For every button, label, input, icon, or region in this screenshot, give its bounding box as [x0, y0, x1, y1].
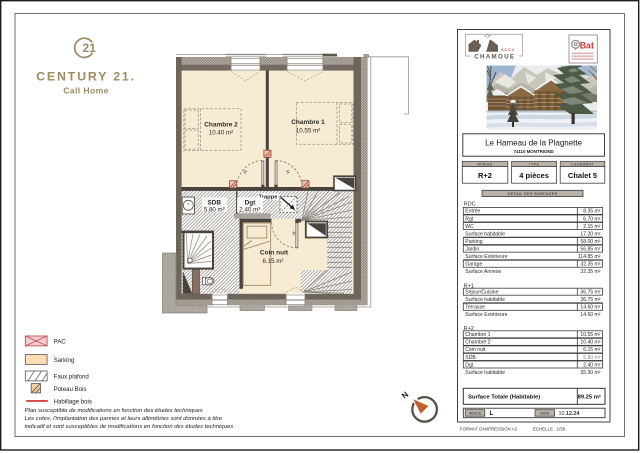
svg-text:Garage: Garage: [465, 262, 482, 268]
svg-text:RDC: RDC: [464, 202, 476, 208]
svg-text:Surface Totale (Habitable): Surface Totale (Habitable): [468, 394, 540, 400]
svg-text:89.25 m²: 89.25 m²: [578, 394, 601, 401]
svg-text:Terrasse: Terrasse: [465, 305, 485, 311]
svg-text:Coin nuit: Coin nuit: [465, 347, 486, 353]
svg-text:74110 MONTRIOND: 74110 MONTRIOND: [513, 149, 553, 154]
svg-text:10.40 m²: 10.40 m²: [580, 340, 600, 346]
svg-text:DETAIL DES SURFACES: DETAIL DES SURFACES: [507, 191, 557, 196]
svg-text:Bat: Bat: [580, 40, 594, 50]
svg-text:SDB: SDB: [465, 355, 476, 361]
svg-text:14.60 m²: 14.60 m²: [580, 312, 600, 318]
svg-text:2.15 m²: 2.15 m²: [583, 224, 601, 230]
svg-text:LOGEMENT: LOGEMENT: [571, 162, 594, 166]
svg-text:SCCV: SCCV: [501, 48, 515, 52]
svg-text:58.00 m²: 58.00 m²: [580, 239, 600, 245]
svg-text:Jardin: Jardin: [465, 246, 479, 252]
svg-text:Entrée: Entrée: [465, 209, 480, 215]
svg-text:Le Hameau de la Plagnette: Le Hameau de la Plagnette: [485, 139, 583, 148]
svg-text:6.15 m²: 6.15 m²: [583, 347, 601, 353]
svg-text:36.75 m²: 36.75 m²: [580, 297, 600, 303]
svg-text:Dgt: Dgt: [245, 199, 257, 206]
svg-text:PAC: PAC: [54, 338, 67, 345]
svg-text:Chambre 2: Chambre 2: [204, 122, 238, 129]
svg-text:DATE: DATE: [540, 412, 550, 416]
svg-text:CHAMOUE: CHAMOUE: [474, 54, 515, 61]
svg-text:Surface Extérieure: Surface Extérieure: [465, 312, 507, 318]
svg-text:Poteau Bois: Poteau Bois: [54, 386, 87, 393]
svg-text:56.85 m²: 56.85 m²: [580, 246, 600, 252]
svg-text:5.80 m²: 5.80 m²: [583, 355, 601, 361]
svg-text:10.12.24: 10.12.24: [559, 411, 580, 417]
svg-text:Séjour/Cuisine: Séjour/Cuisine: [465, 290, 498, 296]
svg-text:NIVEAU: NIVEAU: [477, 162, 492, 166]
svg-text:FORMAT D'IMPRESSION A3: FORMAT D'IMPRESSION A3: [460, 427, 518, 432]
svg-text:8.35 m²: 8.35 m²: [583, 209, 601, 215]
svg-text:Habillage bois: Habillage bois: [54, 398, 92, 405]
svg-text:21: 21: [83, 41, 97, 55]
svg-text:Parking: Parking: [465, 239, 482, 245]
svg-text:Call Home: Call Home: [63, 86, 109, 96]
svg-text:Coin nuit: Coin nuit: [260, 250, 289, 257]
svg-text:32.35 m²: 32.35 m²: [580, 262, 600, 268]
svg-text:Surface Extérieure: Surface Extérieure: [465, 254, 507, 260]
svg-text:Les cotes, l'implantation des: Les cotes, l'implantation des pannes et …: [25, 416, 223, 422]
svg-text:10.40 m²: 10.40 m²: [209, 130, 233, 137]
svg-text:Chambre 2: Chambre 2: [465, 340, 490, 346]
svg-text:Plan susceptible de modificati: Plan susceptible de modifications en fon…: [25, 408, 203, 414]
svg-text:35.30 m²: 35.30 m²: [580, 370, 600, 376]
svg-text:6.15 m²: 6.15 m²: [263, 258, 284, 265]
svg-text:R+2: R+2: [478, 171, 492, 180]
svg-text:Rgt: Rgt: [465, 216, 474, 222]
svg-text:10.55 m²: 10.55 m²: [580, 332, 600, 338]
svg-text:17.20 m²: 17.20 m²: [580, 231, 600, 237]
svg-text:Dgt: Dgt: [465, 362, 474, 368]
svg-text:Surface habitable: Surface habitable: [465, 297, 505, 303]
svg-text:INDICE: INDICE: [469, 412, 482, 416]
svg-text:SDB: SDB: [208, 199, 222, 206]
svg-text:indicatif et sont susceptibles: indicatif et sont susceptibles de modifi…: [25, 424, 234, 430]
svg-text:Surface habitable: Surface habitable: [465, 231, 505, 237]
svg-text:Sarking: Sarking: [54, 357, 75, 364]
svg-text:36.75 m²: 36.75 m²: [580, 290, 600, 296]
svg-text:2.40 m²: 2.40 m²: [239, 207, 260, 214]
svg-text:6.70 m²: 6.70 m²: [583, 216, 601, 222]
svg-text:Surface habitable: Surface habitable: [465, 370, 505, 376]
svg-text:Chambre 1: Chambre 1: [465, 332, 490, 338]
svg-text:Surface Annexe: Surface Annexe: [465, 269, 501, 275]
svg-text:114.85 m²: 114.85 m²: [578, 254, 601, 260]
svg-text:14.60 m²: 14.60 m²: [580, 305, 600, 311]
svg-text:CENTURY 21.: CENTURY 21.: [36, 69, 136, 83]
svg-text:Faux plafond: Faux plafond: [54, 373, 89, 380]
svg-text:2.40 m²: 2.40 m²: [583, 362, 601, 368]
svg-text:TYPE: TYPE: [529, 162, 540, 166]
svg-text:5.80 m²: 5.80 m²: [204, 207, 225, 214]
svg-text:WC: WC: [465, 224, 474, 230]
svg-text:L: L: [490, 411, 494, 417]
svg-text:Chalet 5: Chalet 5: [568, 171, 597, 180]
svg-text:ECHELLE : 1/50: ECHELLE : 1/50: [533, 427, 566, 432]
svg-text:Chambre 1: Chambre 1: [291, 119, 325, 126]
svg-text:4 pièces: 4 pièces: [519, 171, 549, 180]
svg-text:32.35 m²: 32.35 m²: [580, 269, 600, 275]
svg-text:10.55 m²: 10.55 m²: [296, 128, 320, 135]
